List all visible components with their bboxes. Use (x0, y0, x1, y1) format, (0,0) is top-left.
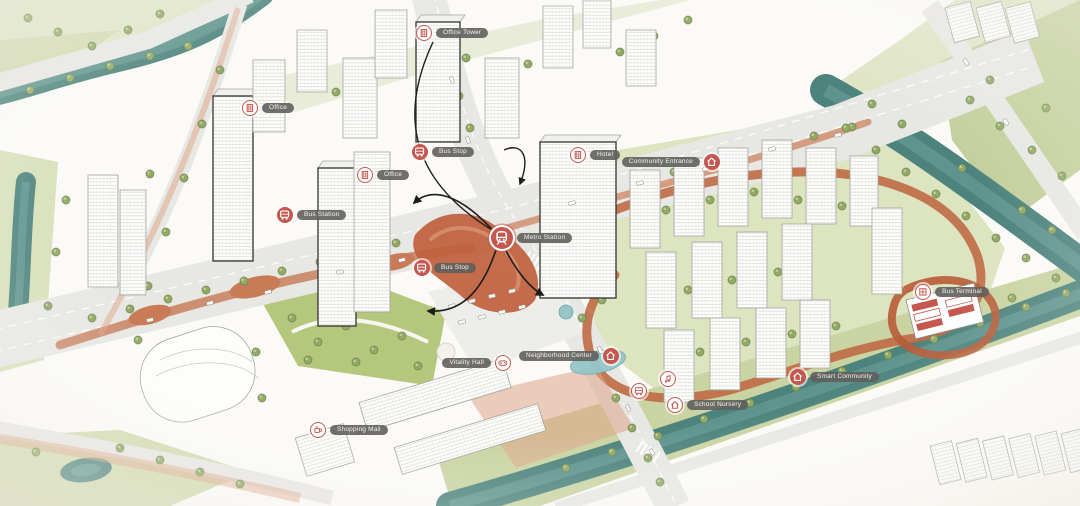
annotation-bus-bay (631, 383, 647, 399)
house-icon (667, 397, 683, 413)
annotation-label: Bus Station (297, 210, 346, 220)
annotation-label: Bus Stop (434, 263, 476, 273)
annotation-label: Smart Community (810, 372, 879, 382)
annotation-label: Bus Stop (432, 147, 474, 157)
house-icon (790, 369, 806, 385)
annotation-bus-stop-north: Bus Stop (412, 144, 428, 160)
annotation-metro-hub: Metro Station (491, 227, 513, 249)
annotation-label: Office Tower (436, 28, 488, 38)
building-icon (357, 167, 373, 183)
bus-icon (414, 260, 430, 276)
annotation-label: Metro Station (517, 233, 572, 243)
annotation-label: Office (262, 103, 294, 113)
annotation-overlay: Office Tower Office Office Bus Stop Bus … (0, 0, 1080, 506)
annotation-school-nursery: School Nursery (667, 397, 683, 413)
annotation-music-plaza (660, 371, 676, 387)
annotation-label: Bus Terminal (935, 287, 989, 297)
annotation-neighborhood-center: Neighborhood Center (603, 348, 619, 364)
annotation-label: Hotel (590, 150, 620, 160)
building-icon (242, 100, 258, 116)
annotation-bus-stop-south: Bus Stop (414, 260, 430, 276)
annotation-community-entrance-north: Community Entrance (704, 154, 720, 170)
annotation-label: Vitality Hall (442, 358, 491, 368)
masterplan-stage: Office Tower Office Office Bus Stop Bus … (0, 0, 1080, 506)
depot-icon (915, 284, 931, 300)
metro-icon (491, 227, 513, 249)
coffee-icon (310, 422, 326, 438)
controller-icon (495, 355, 511, 371)
annotation-office-tower: Office Tower (416, 25, 432, 41)
annotation-office-mid: Office (357, 167, 373, 183)
annotation-office-left: Office (242, 100, 258, 116)
bus-icon (412, 144, 428, 160)
annotation-vitality-hall: Vitality Hall (495, 355, 511, 371)
annotation-shopping-mall: Shopping Mall (310, 422, 326, 438)
annotation-label: Neighborhood Center (519, 351, 599, 361)
annotation-hotel: Hotel (570, 147, 586, 163)
annotation-smart-community: Smart Community (790, 369, 806, 385)
house-icon (603, 348, 619, 364)
annotation-label: School Nursery (687, 400, 748, 410)
annotation-bus-station: Bus Station (277, 207, 293, 223)
annotation-bus-terminal: Bus Terminal (915, 284, 931, 300)
bus-icon (631, 383, 647, 399)
building-icon (416, 25, 432, 41)
music-icon (660, 371, 676, 387)
annotation-label: Community Entrance (622, 157, 700, 167)
building-icon (570, 147, 586, 163)
house-icon (704, 154, 720, 170)
bus-icon (277, 207, 293, 223)
annotation-label: Shopping Mall (330, 425, 388, 435)
annotation-label: Office (377, 170, 409, 180)
